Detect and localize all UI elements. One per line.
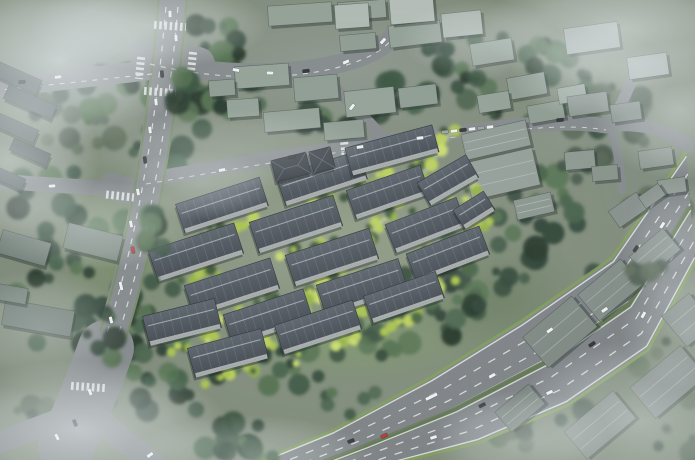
aerial-site-rendering [0, 0, 695, 460]
scene-canvas [0, 0, 695, 460]
cloud-layer [0, 0, 695, 460]
fog-patch [0, 0, 695, 460]
